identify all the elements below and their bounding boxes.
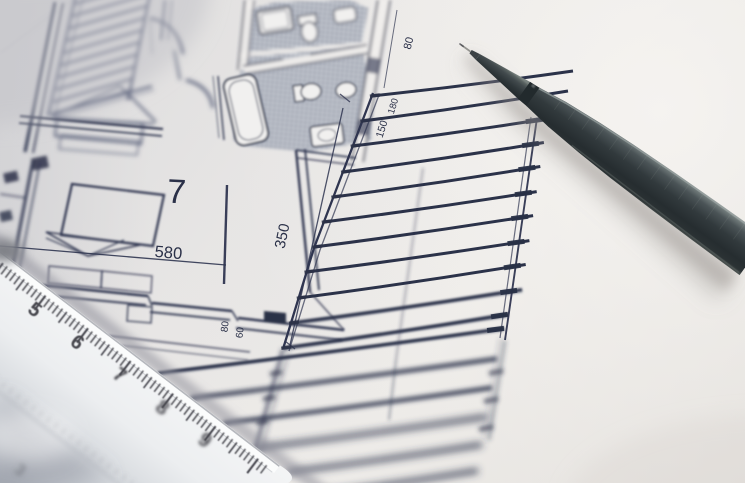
svg-text:7: 7 <box>166 173 187 212</box>
svg-text:60: 60 <box>234 326 246 339</box>
svg-text:580: 580 <box>154 243 183 263</box>
svg-text:80: 80 <box>219 320 231 333</box>
